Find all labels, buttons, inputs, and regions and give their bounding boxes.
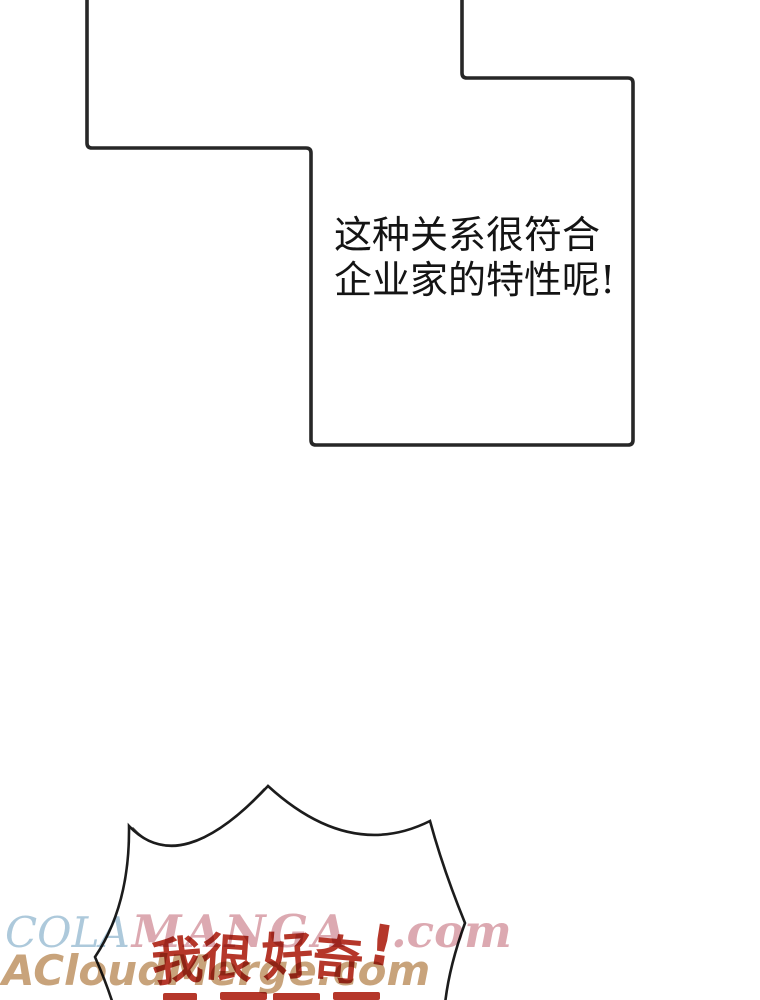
- panel-dialogue-line1: 这种关系很符合: [334, 213, 634, 258]
- watermark-dotcom-part: .com: [391, 905, 512, 958]
- manga-page: 这种关系很符合 企业家的特性呢! 我很好奇! COLAMANGA.com ACl…: [0, 0, 760, 1000]
- clipped-shout-glyph-top: [220, 992, 267, 1000]
- panel-and-bubble-outlines: [0, 0, 760, 1000]
- panel-dialogue-text: 这种关系很符合 企业家的特性呢!: [334, 213, 634, 303]
- watermark-cola-part: COLA: [5, 908, 130, 957]
- clipped-shout-glyph-top: [273, 993, 320, 1000]
- burst-bubble-thick-arc: [133, 789, 264, 846]
- clipped-shout-glyph-top: [333, 992, 380, 1000]
- watermark-layer: COLAMANGA.com ACloudMerge.com: [0, 0, 760, 1000]
- panel-dialogue-line2: 企业家的特性呢!: [334, 258, 634, 303]
- clipped-shout-glyph-top: [163, 993, 197, 1000]
- shout-text: 我很好奇!: [151, 917, 394, 991]
